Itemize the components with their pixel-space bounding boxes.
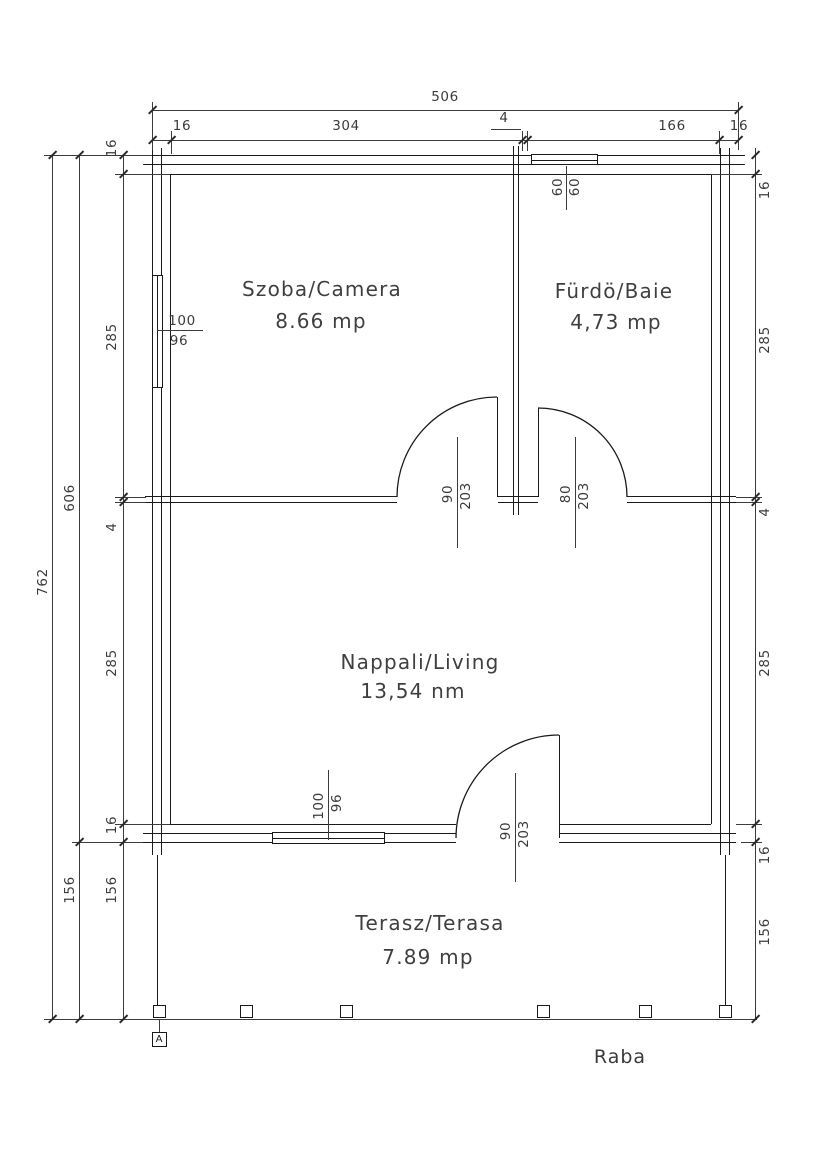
dim-line-left-chain [123,155,124,1019]
dim-extension [44,155,152,156]
dim-label-top-total: 506 [431,89,459,105]
dim-label-left-total: 762 [35,568,51,596]
dim-label: 285 [757,326,773,354]
dim-label: 16 [757,846,773,864]
floor-plan-canvas: 506 16 304 4 166 16 762 606 156 16 285 4… [0,0,826,1169]
dim-extension [736,502,762,503]
door-arc-bedroom [397,397,497,497]
door-leaf-bedroom [497,397,498,497]
dim-label: 156 [757,918,773,946]
door-size-label: 90 [498,822,514,840]
dim-label: 285 [104,323,120,351]
dim-label: 4 [104,522,120,531]
signature: Raba [594,1046,646,1068]
wall-bottom-inner-face-left [170,824,456,825]
door-size-label: 203 [576,482,592,510]
dim-line-left-total [52,155,53,1019]
terrace-post [639,1005,652,1018]
dim-leader-window-left [157,330,203,331]
dim-label: 16 [730,118,748,134]
room-name-szoba: Szoba/Camera [242,277,402,301]
window-size-label: 60 [550,178,566,196]
dim-extension [72,842,143,843]
dim-label: 4 [499,110,508,126]
window-size-label: 60 [567,178,583,196]
door-size-label: 203 [458,482,474,510]
dim-label: 606 [62,484,78,512]
room-name-terasz: Terasz/Terasa [355,911,504,935]
wall-middle-segment-left [145,496,397,503]
terrace-post [719,1005,732,1018]
door-size-label: 80 [558,485,574,503]
terrace-front-edge [44,1019,757,1020]
wall-partition-bath [513,146,520,515]
wall-bottom-inner-face-right [559,824,711,825]
wall-top-band [143,155,745,165]
room-area-furdo: 4,73 mp [570,310,661,334]
dim-extension [719,131,720,154]
dim-label: 16 [104,139,120,157]
dim-label: 156 [62,876,78,904]
room-area-nappali: 13,54 nm [360,679,465,703]
dim-extension [736,824,762,825]
window-size-label: 96 [329,794,345,812]
wall-middle-segment-right [627,496,736,503]
dim-extension [171,131,172,154]
window-glass-line [532,160,597,161]
window-size-label: 100 [311,792,327,820]
terrace-post [153,1005,166,1018]
dim-label: 285 [104,649,120,677]
wall-top-inner-face [170,174,711,175]
dim-label: 304 [332,118,360,134]
dim-label: 16 [173,118,191,134]
dim-line-left-outer [79,155,80,1019]
terrace-post [537,1005,550,1018]
door-leaf-bath [538,408,539,497]
room-area-szoba: 8.66 mp [275,309,366,333]
dim-leader-4 [491,129,521,130]
window-top-60x60 [531,154,598,165]
window-left-100x96 [152,275,163,388]
door-size-label: 90 [440,485,456,503]
dim-label: 16 [757,181,773,199]
window-glass-line [157,276,158,387]
terrace-side-edge-right [725,855,726,1005]
wall-bottom-band-right [559,833,736,843]
window-size-label: 100 [168,313,196,329]
door-size-label: 203 [516,820,532,848]
terrace-post [240,1005,253,1018]
terrace-post [340,1005,353,1018]
dim-label: 166 [658,118,686,134]
room-name-nappali: Nappali/Living [341,650,500,674]
dim-line-top-chain [152,140,738,141]
dim-label: 285 [757,649,773,677]
section-marker-a: A [152,1032,167,1047]
dim-label: 4 [757,507,773,516]
door-leaf-terrace [559,735,560,838]
room-name-furdo: Fürdö/Baie [555,279,673,303]
dim-label: 16 [104,816,120,834]
terrace-side-edge-left [157,855,158,1005]
dim-line-top-total [152,110,738,111]
window-size-label: 96 [170,333,188,349]
section-marker-leader [159,1019,160,1032]
dim-line-right-chain [755,148,756,1019]
dim-label: 156 [104,876,120,904]
room-area-terasz: 7.89 mp [382,945,473,969]
